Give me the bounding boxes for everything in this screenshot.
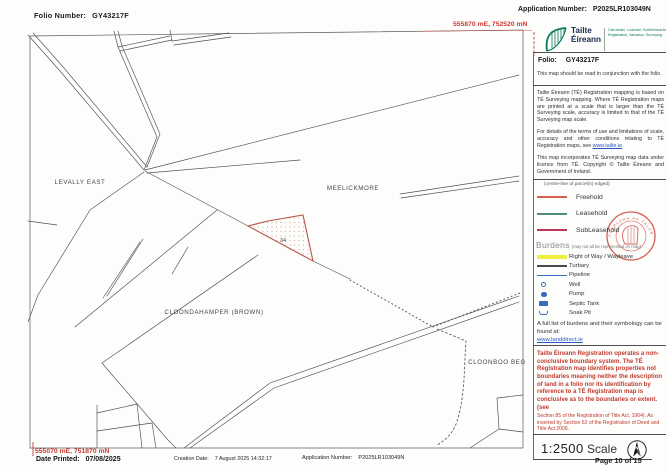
freehold-label: Freehold xyxy=(576,194,603,201)
burdens-legend: Right of Way / Wayleave Turbary Pipeline… xyxy=(537,252,666,318)
pump-label: Pump xyxy=(569,291,584,297)
header-folio-value: GY43217F xyxy=(92,11,129,20)
header-application-label: Application Number: xyxy=(518,6,587,13)
sidebar-folio-row: Folio:GY43217F xyxy=(538,57,608,64)
full-list-text: A full list of burdens and their symbolo… xyxy=(537,321,662,335)
north-letter: N xyxy=(635,446,638,451)
sidebar-left-border xyxy=(533,52,534,460)
legend-row-subleasehold: SubLeasehold xyxy=(537,222,666,239)
sidebar-divider xyxy=(533,345,666,346)
burden-row-septic-tank: Septic Tank xyxy=(537,299,666,308)
pipeline-swatch xyxy=(537,275,567,276)
grid-reference-top-right: 555870 mE, 752520 mN xyxy=(453,21,527,28)
logo-separator xyxy=(604,28,605,51)
freehold-line-swatch xyxy=(537,196,567,198)
disclaimer-small-text: Section 85 of the Registration of Title … xyxy=(537,413,664,432)
tenure-legend: Freehold Leasehold SubLeasehold xyxy=(537,189,666,239)
sidebar-divider xyxy=(533,85,666,86)
logo-tagline-irish: Clárúcháin, Luacháil, Suirbhéireacht xyxy=(608,28,666,33)
burdens-note: (may not all be represented on map) xyxy=(572,244,641,249)
paragraph-copyright: This map incorporates TÉ Surveying map d… xyxy=(537,155,664,175)
burden-row-pipeline: Pipeline xyxy=(537,271,666,280)
legend-row-freehold: Freehold xyxy=(537,189,666,206)
burden-row-soak-pit: Soak Pit xyxy=(537,308,666,317)
paragraph-terms-period: . xyxy=(622,143,623,149)
townland-label-cloonboo-beg: CLOONBOO BEG xyxy=(468,359,526,366)
burden-row-turbary: Turbary xyxy=(537,261,666,270)
townland-label-cloondahamper: CLOONDAHAMPER (BROWN) xyxy=(164,309,263,316)
subleasehold-line-swatch xyxy=(537,229,567,231)
burdens-full-list-note: A full list of burdens and their symbolo… xyxy=(537,321,665,344)
well-label: Well xyxy=(569,282,580,288)
header-folio-number: Folio Number:GY43217F xyxy=(34,11,129,20)
date-printed-label: Date Printed: xyxy=(36,456,80,463)
disclaimer-bold-text: Tailte Éireann Registration operates a n… xyxy=(537,351,664,412)
burden-row-pump: Pump xyxy=(537,290,666,299)
townland-boundary-dotted xyxy=(350,280,520,327)
septic-tank-icon xyxy=(539,301,548,306)
paragraph-terms: For details of the terms of use and limi… xyxy=(537,129,664,149)
header-application-number: Application Number:P2025LR103049N xyxy=(518,6,651,13)
turbary-label: Turbary xyxy=(569,263,589,269)
burden-row-well: Well xyxy=(537,280,666,289)
soak-pit-label: Soak Pit xyxy=(569,310,591,316)
date-printed: Date Printed:07/08/2025 xyxy=(36,456,121,463)
scale-value: 1:2500 xyxy=(541,441,584,456)
registry-map-page: 34 LEVALLY EAST MEELICKMORE CLOONDAHAMPE… xyxy=(0,0,668,472)
leasehold-label: Leasehold xyxy=(576,210,607,217)
boundary-disclaimer: Tailte Éireann Registration operates a n… xyxy=(537,351,664,433)
logo-name-line2: Éireann xyxy=(571,36,601,45)
legend-centreline-note: (centre-line of parcel(s) edged) xyxy=(544,182,610,187)
leasehold-line-swatch xyxy=(537,213,567,215)
header-application-value: P2025LR103049N xyxy=(593,6,651,13)
turbary-swatch xyxy=(537,265,567,268)
townland-label-levally-east: LEVALLY EAST xyxy=(55,179,106,186)
tailte-harp-icon xyxy=(542,25,569,54)
sidebar-paragraphs: Tailte Éireann (TÉ) Registration mapping… xyxy=(537,90,664,181)
pump-icon xyxy=(541,292,547,298)
burdens-header: Burdens(may not all be represented on ma… xyxy=(536,240,641,250)
sidebar-folio-label: Folio: xyxy=(538,57,557,64)
burdens-title: Burdens xyxy=(536,240,570,250)
sidebar-divider xyxy=(533,434,666,435)
well-icon xyxy=(541,282,546,287)
tailte-logo-wordmark: Tailte Éireann xyxy=(571,27,601,45)
footer-application-number: Application Number:P2025LR103049N xyxy=(302,455,404,461)
sidebar-folio-value: GY43217F xyxy=(566,57,599,64)
subleasehold-label: SubLeasehold xyxy=(576,227,619,234)
soak-pit-icon xyxy=(539,311,548,316)
logo-tagline-english: Registration, Valuation, Surveying xyxy=(608,33,666,38)
grid-reference-bottom-left: 555070 mE, 751870 mN xyxy=(35,448,109,455)
date-printed-value: 07/08/2025 xyxy=(86,456,121,463)
townland-label-meelickmore: MEELICKMORE xyxy=(327,185,379,192)
creation-date-value: 7 August 2025 14:32:17 xyxy=(215,456,272,462)
pipeline-label: Pipeline xyxy=(569,272,590,278)
right-of-way-swatch xyxy=(537,255,567,259)
paragraph-accuracy: Tailte Éireann (TÉ) Registration mapping… xyxy=(537,90,664,124)
scale-word: Scale xyxy=(587,442,617,456)
sidebar-intro-note: This map should be read in conjunction w… xyxy=(537,71,664,78)
legend-row-leasehold: Leasehold xyxy=(537,206,666,223)
parcel-number-label: 34 xyxy=(280,238,286,244)
header-folio-label: Folio Number: xyxy=(34,11,86,20)
townland-boundary-ticked xyxy=(437,329,466,445)
creation-date: Creation Date:7 August 2025 14:32:17 xyxy=(174,456,272,462)
burden-row-right-of-way: Right of Way / Wayleave xyxy=(537,252,666,261)
landdirect-link[interactable]: www.landdirect.ie xyxy=(537,337,583,343)
footer-application-label: Application Number: xyxy=(302,455,352,461)
logo-tagline: Clárúcháin, Luacháil, Suirbhéireacht Reg… xyxy=(608,28,666,37)
footer-application-value: P2025LR103049N xyxy=(358,455,404,461)
page-indicator: Page 10 of 15 xyxy=(595,456,642,465)
creation-date-label: Creation Date: xyxy=(174,456,209,462)
septic-tank-label: Septic Tank xyxy=(569,301,599,307)
tailte-website-link[interactable]: www.tailte.ie xyxy=(593,143,622,149)
right-of-way-label: Right of Way / Wayleave xyxy=(569,254,633,260)
